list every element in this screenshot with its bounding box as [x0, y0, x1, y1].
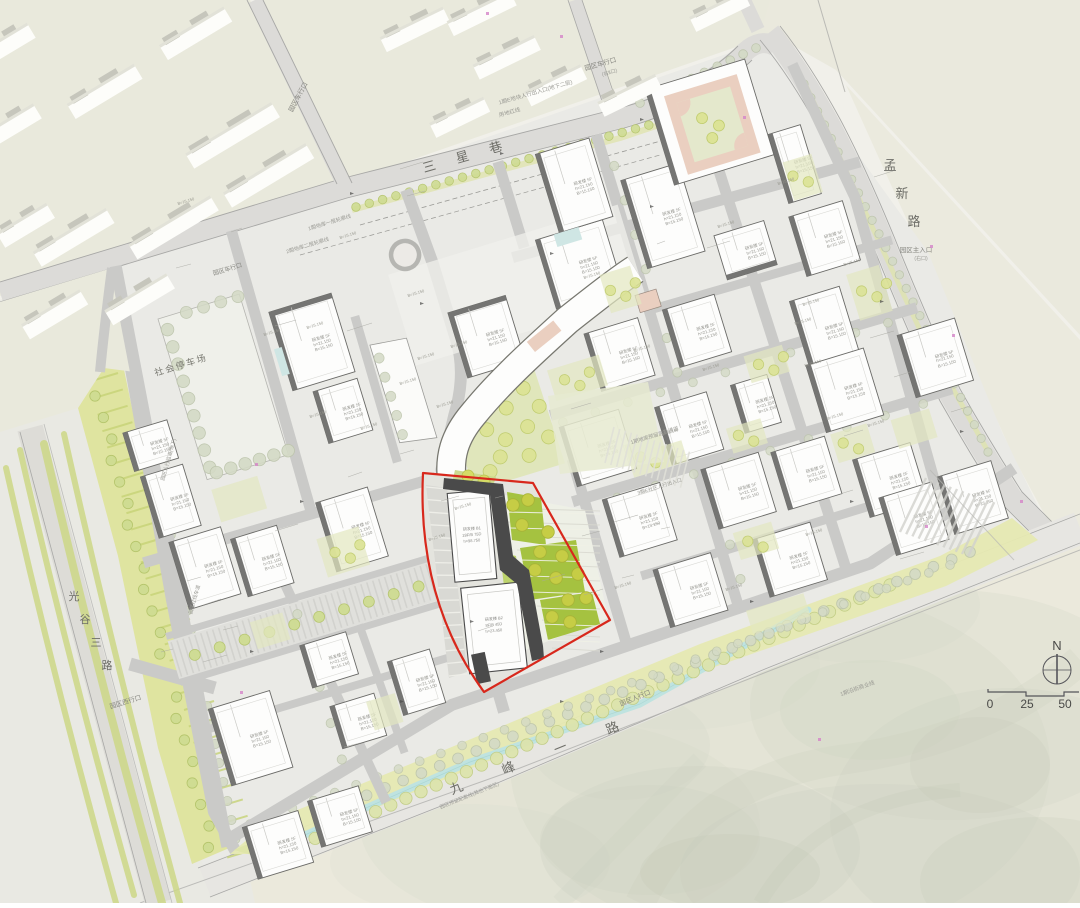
- svg-text:路: 路: [907, 214, 920, 229]
- svg-text:谷: 谷: [80, 613, 91, 626]
- svg-text:50: 50: [1058, 697, 1072, 711]
- svg-text:25: 25: [1020, 697, 1034, 711]
- svg-text:新: 新: [895, 186, 908, 201]
- svg-text:0: 0: [987, 697, 994, 711]
- svg-text:N: N: [1052, 638, 1061, 653]
- svg-text:园区主入口: 园区主入口: [900, 245, 933, 254]
- svg-text:孟: 孟: [883, 158, 896, 173]
- svg-text:三: 三: [91, 637, 102, 649]
- svg-text:路: 路: [102, 659, 113, 672]
- svg-text:光: 光: [69, 589, 80, 603]
- svg-text:(右口): (右口): [914, 255, 928, 262]
